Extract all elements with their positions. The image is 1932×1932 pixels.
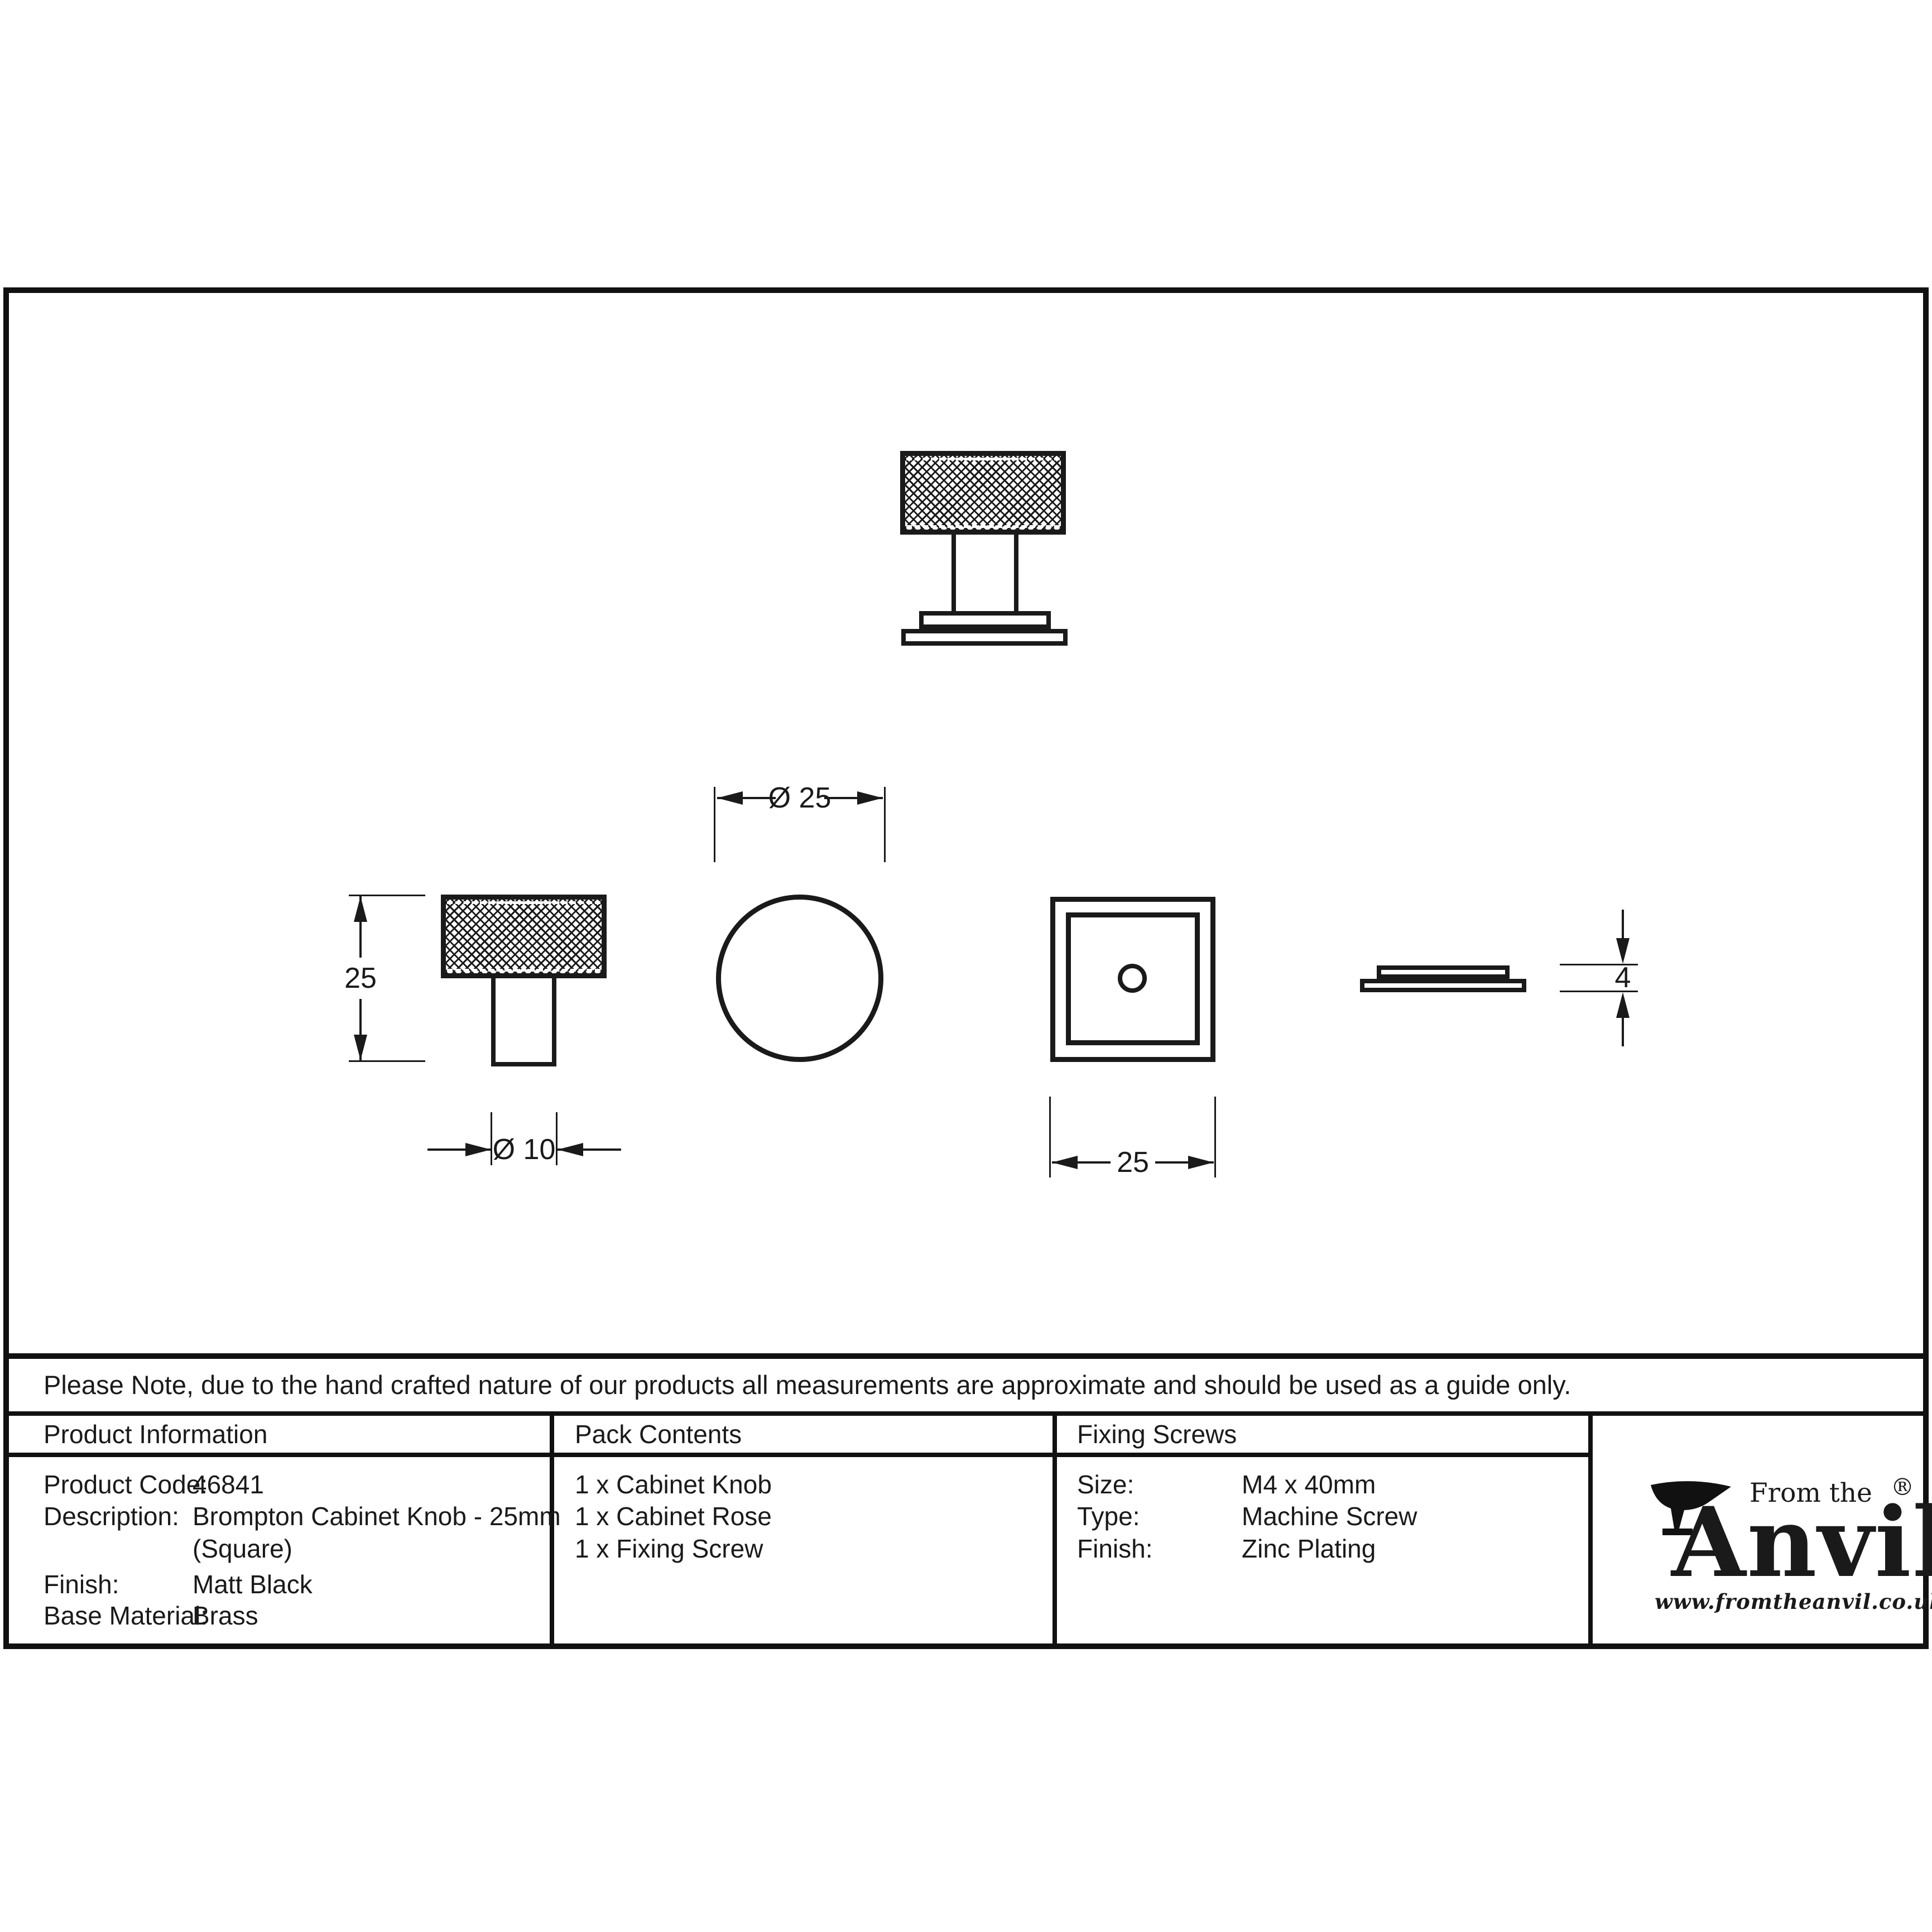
rose-lower-step — [1360, 979, 1526, 992]
dimension-label-rose-thickness: 4 — [1595, 962, 1651, 993]
arrowhead-left — [717, 791, 743, 805]
arrowhead-left — [1052, 1156, 1078, 1169]
fixing-screws-label: Size: — [1077, 1468, 1134, 1501]
rose-lower-step — [901, 629, 1068, 646]
column-header-product-information: Product Information — [44, 1417, 267, 1451]
knurl-dash-bottom — [447, 969, 600, 972]
dimension-label-square-width: 25 — [1097, 1147, 1169, 1178]
knob-face-circle — [716, 895, 883, 1062]
dimension-label-knob-height: 25 — [324, 963, 397, 994]
rose-upper-step — [1377, 965, 1510, 979]
product-info-label: Base Material: — [44, 1599, 208, 1632]
knob-head-knurled — [441, 895, 607, 978]
measurement-note: Please Note, due to the hand crafted nat… — [44, 1368, 1571, 1402]
knob-stem — [951, 535, 1018, 616]
fixing-screws-value: M4 x 40mm — [1242, 1468, 1376, 1501]
arrowhead-down — [354, 1035, 367, 1060]
product-info-value: (Square) — [193, 1532, 292, 1565]
extension-line — [349, 1060, 425, 1062]
extension-line — [1214, 1097, 1216, 1178]
pack-contents-item: 1 x Cabinet Knob — [575, 1468, 772, 1501]
arrowhead-right — [1188, 1156, 1214, 1169]
dimension-label-stem-diameter: Ø 10 — [479, 1134, 569, 1165]
rose-upper-step — [919, 611, 1051, 629]
pack-contents-item: 1 x Fixing Screw — [575, 1532, 763, 1565]
fixing-screws-value: Zinc Plating — [1242, 1532, 1376, 1565]
product-info-label: Finish: — [44, 1568, 119, 1601]
extension-line — [1049, 1097, 1051, 1178]
product-info-label: Description: — [44, 1500, 179, 1533]
arrowhead-up — [354, 896, 367, 922]
fixing-screws-label: Finish: — [1077, 1532, 1152, 1565]
arrowhead-down — [1616, 938, 1630, 964]
note-row-top-rule — [3, 1353, 1929, 1359]
fixing-screws-label: Type: — [1077, 1500, 1140, 1533]
arrowhead-right — [857, 791, 883, 805]
extension-line — [884, 787, 886, 862]
knob-stem — [491, 978, 556, 1066]
column-divider — [1052, 1411, 1057, 1645]
technical-drawing-sheet: 25 Ø 10 Ø 25 25 — [0, 0, 1932, 1932]
knurl-dash-top — [447, 901, 600, 904]
product-info-label: Product Code: — [44, 1468, 208, 1501]
dimension-label-knob-diameter: Ø 25 — [749, 782, 850, 814]
pack-contents-item: 1 x Cabinet Rose — [575, 1500, 772, 1533]
knurl-dash-bottom — [906, 525, 1060, 528]
product-info-value: Brass — [193, 1599, 258, 1632]
product-info-value: 46841 — [193, 1468, 264, 1501]
product-info-value: Brompton Cabinet Knob - 25mm — [193, 1500, 561, 1533]
fixing-screws-value: Machine Screw — [1242, 1500, 1417, 1533]
dimension-line — [1622, 1013, 1624, 1046]
column-header-fixing-screws: Fixing Screws — [1077, 1417, 1237, 1451]
table-header-rule — [3, 1453, 1590, 1457]
extension-line — [714, 787, 715, 862]
column-divider — [1588, 1411, 1593, 1645]
table-top-rule — [3, 1411, 1929, 1416]
arrowhead-up — [1616, 992, 1630, 1018]
knurl-dash-top — [906, 458, 1060, 460]
logo-brand-name: Anvil — [1671, 1494, 1932, 1590]
knob-head-knurled — [900, 451, 1066, 535]
knob-screw-hole — [1118, 964, 1147, 993]
logo-website-url: www.fromtheanvil.co.uk — [1655, 1589, 1903, 1614]
column-header-pack-contents: Pack Contents — [575, 1417, 742, 1451]
product-info-value: Matt Black — [193, 1568, 313, 1601]
